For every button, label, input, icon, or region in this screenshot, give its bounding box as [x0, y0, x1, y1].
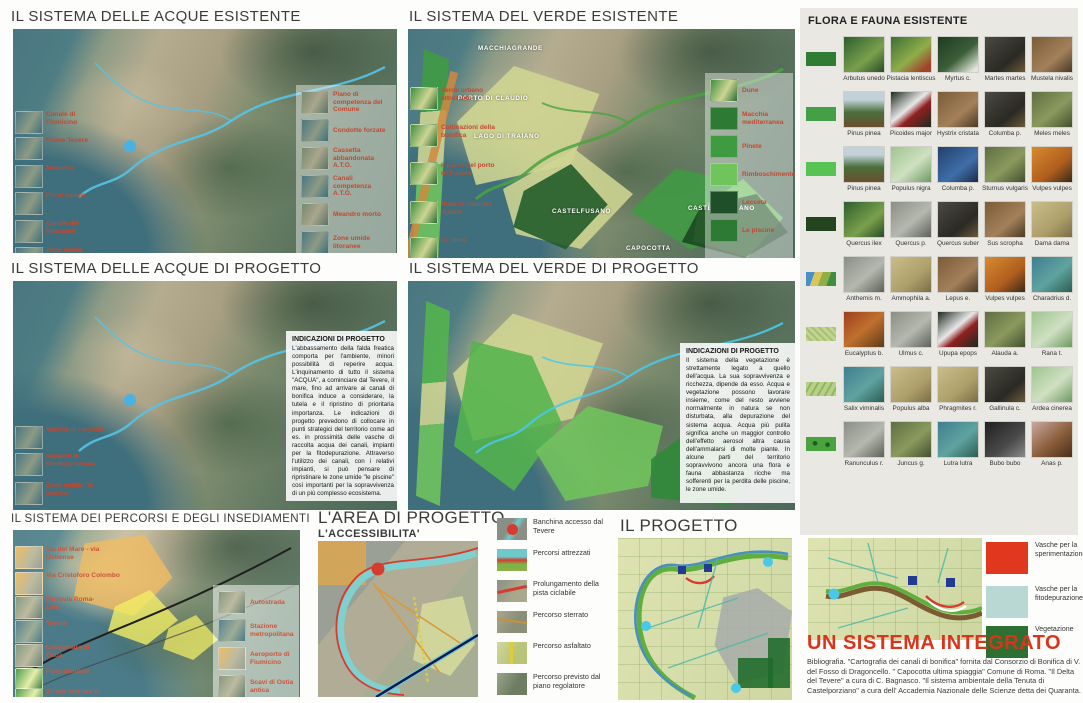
map-callout: Meandro [15, 165, 104, 188]
map-callout: Coltivazioni della bonifica [410, 124, 499, 147]
callout-thumbnail [15, 546, 43, 569]
callout-label: Via Cristoforo Colombo [46, 572, 124, 580]
legend-item: Canali competenza A.T.O. [301, 175, 391, 198]
species-name: Anthemis m. [846, 295, 882, 302]
acque-esistente-title: IL SISTEMA DELLE ACQUE ESISTENTE [11, 8, 301, 25]
species-name: Mustela nivalis [1031, 75, 1073, 82]
species-name: Pistacia lentiscus [886, 75, 935, 82]
callout-thumbnail [410, 124, 438, 147]
species-cell: Sturnus vulgaris [983, 146, 1027, 192]
flora-row: Arbutus unedo Pistacia lentiscus Myrtus … [806, 36, 1078, 82]
legend-label: Zone umide litoranee [333, 235, 391, 250]
verde-esistente-legend: Dune Macchia mediterranea Pinete Rimbosc… [705, 73, 793, 258]
map-callout: Zone umide "le piscine" [15, 482, 104, 505]
legend-thumbnail [710, 191, 738, 214]
species-cell: Anas p. [1030, 421, 1074, 467]
species-name: Salix viminalis [844, 405, 884, 412]
species-cell: Upupa epops [936, 311, 980, 357]
species-cell: Mustela nivalis [1030, 36, 1074, 82]
accessibilita-routes-graphic [318, 541, 478, 697]
legend-thumbnail [710, 163, 738, 186]
legend-thumbnail [710, 135, 738, 158]
legend-label: Stazione metropolitana [250, 623, 294, 638]
species-photo [1031, 311, 1073, 348]
species-photo [843, 36, 885, 73]
legend-item: Zone umide litoranee [301, 231, 391, 253]
legend-thumbnail [218, 675, 246, 697]
species-name: Gallinula c. [989, 405, 1021, 412]
species-cell: Columba p. [936, 146, 980, 192]
species-name: Ardea cinerea [1032, 405, 1072, 412]
species-cell: Populus alba [889, 366, 933, 412]
species-photo [890, 366, 932, 403]
legend-item: Condotte forzate [301, 119, 391, 142]
species-photo [1031, 366, 1073, 403]
map-callout: Canale di Fiumicino [15, 111, 104, 134]
legend-swatch [986, 586, 1028, 618]
acque-esistente-map: Canale di Fiumicino Fiume Tevere Meandro… [13, 29, 397, 253]
integrato-legend-item: Vasche per la sperimentazione [986, 542, 1083, 574]
callout-label: Le dune [441, 237, 499, 245]
species-name: Martes martes [985, 75, 1026, 82]
place-label: CASTELFUSANO [552, 208, 611, 215]
map-callout: Canale dei Pescatori [15, 220, 104, 243]
species-name: Anas p. [1041, 460, 1063, 467]
legend-thumbnail [301, 119, 329, 142]
legend-item: Pinete [710, 135, 788, 158]
species-name: Vulpes vulpes [1032, 185, 1072, 192]
species-name: Lutra lutra [944, 460, 973, 467]
flora-row: Ranunculus r. Juncus g. Lutra lutra Bubo… [806, 421, 1078, 467]
callout-thumbnail [410, 201, 438, 224]
legend-item: Dune [710, 79, 788, 102]
callout-thumbnail [15, 137, 43, 160]
callout-label: Tevere [46, 620, 104, 628]
map-callout: Impianti di fitodepurazione [15, 453, 104, 476]
habitat-swatch [806, 162, 836, 176]
species-photo [890, 201, 932, 238]
species-name: Ammophila a. [891, 295, 930, 302]
legend-item: Piano di competenza del Comune [301, 91, 391, 114]
species-cell: Salix viminalis [842, 366, 886, 412]
callout-thumbnail [15, 247, 43, 253]
species-cell: Meles meles [1030, 91, 1074, 137]
flora-row: Pinus pinea Populus nigra Columba p. Stu… [806, 146, 1078, 192]
callout-label: Verde urbano attrezzato [441, 87, 499, 102]
species-cell: Pinus pinea [842, 91, 886, 137]
map-callout: Fiume Tevere [15, 137, 104, 160]
species-name: Populus alba [893, 405, 930, 412]
species-photo [984, 91, 1026, 128]
species-cell: Eucalyptus b. [842, 311, 886, 357]
acque-progetto-title: IL SISTEMA DELLE ACQUE DI PROGETTO [11, 260, 321, 277]
map-callout: Vasche di raccolta [15, 426, 104, 449]
species-photo [843, 421, 885, 458]
habitat-swatch [806, 107, 836, 121]
species-name: Sturnus vulgaris [982, 185, 1028, 192]
legend-item: Percorso sterrato [497, 611, 612, 633]
callout-label: Pista ciclabile [46, 668, 104, 676]
species-photo [937, 256, 979, 293]
species-cell: Phragmites r. [936, 366, 980, 412]
habitat-swatch [806, 217, 836, 231]
species-cell: Ranunculus r. [842, 421, 886, 467]
map-callout: Tevere [15, 620, 104, 643]
species-cell: Populus nigra [889, 146, 933, 192]
species-cell: Vulpes vulpes [983, 256, 1027, 302]
species-cell: Quercus suber [936, 201, 980, 247]
species-cell: Martes martes [983, 36, 1027, 82]
legend-item: Autostrada [218, 591, 294, 614]
legend-thumbnail [497, 673, 527, 695]
species-photo [843, 146, 885, 183]
species-cell: Lutra lutra [936, 421, 980, 467]
species-photo [984, 421, 1026, 458]
map-callout: Via del Mare - via Ostiense [15, 546, 124, 569]
callout-thumbnail [15, 426, 43, 449]
callout-label: Zone umide [46, 247, 104, 253]
species-cell: Picoides major [889, 91, 933, 137]
bibliography-text: Bibliografia. "Cartografia dei canali di… [807, 657, 1081, 696]
species-name: Hystrix cristata [937, 130, 979, 137]
species-name: Populus nigra [891, 185, 930, 192]
indicazioni-text: L'abbassamento della falda freatica comp… [292, 345, 394, 498]
legend-label: Percorso asfaltato [533, 642, 591, 651]
accessibilita-legend: Banchina accesso dal Tevere Percorsi att… [497, 518, 612, 703]
species-cell: Pinus pinea [842, 146, 886, 192]
species-photo [937, 146, 979, 183]
sistema-integrato-map [808, 538, 982, 640]
map-callout: Zone umide [15, 247, 104, 253]
legend-label: Cassetta abbandonata A.T.O. [333, 147, 391, 170]
species-photo [1031, 256, 1073, 293]
callout-label: Vasche di raccolta [46, 426, 104, 434]
habitat-swatch [806, 272, 836, 286]
indicazioni-text: Il sistema della vegetazione è strettame… [686, 357, 790, 494]
legend-item: Lecceta [710, 191, 788, 214]
species-name: Vulpes vulpes [985, 295, 1025, 302]
callout-thumbnail [15, 453, 43, 476]
legend-item: Le piscine [710, 219, 788, 242]
legend-thumbnail [301, 175, 329, 198]
species-name: Arbutus unedo [843, 75, 885, 82]
species-photo [890, 36, 932, 73]
legend-label: Percorso previsto dal piano regolatore [533, 673, 612, 690]
legend-item: Aeroporto di Fiumicino [218, 647, 294, 670]
species-cell: Quercus p. [889, 201, 933, 247]
habitat-swatch [806, 382, 836, 396]
species-photo [984, 201, 1026, 238]
species-photo [890, 256, 932, 293]
area-progetto-title: L'AREA DI PROGETTO [318, 508, 505, 528]
species-photo [937, 91, 979, 128]
legend-label: Aeroporto di Fiumicino [250, 651, 294, 666]
callout-thumbnail [410, 87, 438, 110]
legend-thumbnail [301, 203, 329, 226]
legend-thumbnail [218, 591, 246, 614]
legend-label: Percorsi attrezzati [533, 549, 591, 558]
legend-item: Macchia mediterranea [710, 107, 788, 130]
accessibilita-map [318, 541, 478, 697]
callout-label: Il parco del porto di Traiano [441, 162, 499, 177]
species-name: Juncus g. [897, 460, 924, 467]
legend-thumbnail [301, 147, 329, 170]
percorsi-legend: Autostrada Stazione metropolitana Aeropo… [213, 585, 299, 697]
map-callout: Porto canale [15, 192, 104, 215]
map-callout: Il parco del porto di Traiano [410, 162, 499, 185]
species-photo [1031, 91, 1073, 128]
callout-label: Canale dei Pescatori [46, 220, 104, 235]
callout-label: Zone umide "le piscine" [46, 482, 104, 497]
legend-thumbnail [710, 79, 738, 102]
legend-label: Vasche per la sperimentazione [1035, 542, 1083, 560]
species-name: Myrtus c. [945, 75, 971, 82]
legend-label: Piano di competenza del Comune [333, 91, 391, 114]
legend-item: Cassetta abbandonata A.T.O. [301, 147, 391, 170]
species-name: Eucalyptus b. [845, 350, 883, 357]
species-name: Phragmites r. [939, 405, 977, 412]
species-photo [890, 146, 932, 183]
legend-label: Pinete [742, 143, 788, 151]
legend-thumbnail [497, 580, 527, 602]
map-callout: Via Cristoforo Colombo [15, 572, 124, 595]
percorsi-map: Via del Mare - via Ostiense Via Cristofo… [13, 530, 300, 697]
callout-label: Canale di Fiumicino [46, 111, 104, 126]
flora-row: Pinus pinea Picoides major Hystrix crist… [806, 91, 1078, 137]
progetto-title: IL PROGETTO [620, 516, 738, 536]
species-name: Picoides major [890, 130, 932, 137]
species-photo [984, 146, 1026, 183]
legend-item: Percorso previsto dal piano regolatore [497, 673, 612, 695]
legend-label: Banchina accesso dal Tevere [533, 518, 612, 535]
legend-thumbnail [218, 619, 246, 642]
legend-item: Percorso asfaltato [497, 642, 612, 664]
callout-label: Meandro [46, 165, 104, 173]
species-photo [937, 311, 979, 348]
flora-row: Eucalyptus b. Ulmus c. Upupa epops Alaud… [806, 311, 1078, 357]
species-cell: Sus scropha [983, 201, 1027, 247]
legend-label: Macchia mediterranea [742, 111, 788, 126]
legend-item: Stazione metropolitana [218, 619, 294, 642]
species-name: Lepus e. [946, 295, 971, 302]
flora-fauna-panel: FLORA E FAUNA ESISTENTE Arbutus unedo Pi… [800, 8, 1078, 535]
callout-thumbnail [15, 220, 43, 243]
map-callout: Verde urbano attrezzato [410, 87, 499, 110]
habitat-swatch [806, 327, 836, 341]
species-photo [984, 366, 1026, 403]
map-callout: Le dune [410, 237, 499, 258]
map-callout: Strade sterrate di bonifica [15, 688, 104, 697]
species-cell: Rana t. [1030, 311, 1074, 357]
callout-label: Porto canale [46, 192, 104, 200]
legend-item: Meandro morto [301, 203, 391, 226]
indicazioni-title: INDICAZIONI DI PROGETTO [292, 336, 394, 343]
species-photo [843, 366, 885, 403]
species-photo [890, 421, 932, 458]
legend-swatch [986, 542, 1028, 574]
map-callout: Ferrovia Roma-Lido [15, 596, 104, 619]
callout-label: Lungomare di Ostia [46, 644, 104, 659]
callout-thumbnail [410, 162, 438, 185]
species-name: Meles meles [1034, 130, 1070, 137]
place-label: CAPOCOTTA [626, 245, 671, 252]
percorsi-title: IL SISTEMA DEI PERCORSI E DEGLI INSEDIAM… [11, 513, 310, 525]
legend-label: Lecceta [742, 199, 788, 207]
verde-esistente-map: MACCHIAGRANDE PORTO DI CLAUDIO LAGO DI T… [408, 29, 795, 258]
legend-label: Rimboschimento [742, 171, 795, 179]
species-name: Quercus ilex [846, 240, 882, 247]
integrato-legend-item: Vasche per la fitodepurazione [986, 586, 1083, 618]
legend-label: Canali competenza A.T.O. [333, 175, 391, 198]
flora-row: Quercus ilex Quercus p. Quercus suber Su… [806, 201, 1078, 247]
species-cell: Hystrix cristata [936, 91, 980, 137]
legend-label: Condotte forzate [333, 127, 391, 135]
callout-thumbnail [15, 111, 43, 134]
callout-thumbnail [15, 165, 43, 188]
legend-item: Prolungamento della pista ciclabile [497, 580, 612, 602]
species-name: Sus scropha [987, 240, 1023, 247]
species-name: Quercus p. [895, 240, 926, 247]
indicazioni-acque-box: INDICAZIONI DI PROGETTO L'abbassamento d… [286, 331, 397, 501]
callout-label: Strade sterrate di bonifica [46, 688, 104, 697]
legend-label: Scavi di Ostia antica [250, 679, 294, 694]
species-name: Ranunculus r. [844, 460, 883, 467]
callout-thumbnail [410, 237, 438, 258]
species-photo [1031, 36, 1073, 73]
species-cell: Gallinula c. [983, 366, 1027, 412]
species-name: Quercus suber [937, 240, 979, 247]
species-name: Columba p. [942, 185, 975, 192]
callout-thumbnail [15, 596, 43, 619]
callout-label: Riserva naturale statale [441, 201, 499, 216]
progetto-map [618, 538, 792, 700]
species-photo [843, 201, 885, 238]
integrato-graphic [808, 538, 982, 640]
species-cell: Pistacia lentiscus [889, 36, 933, 82]
legend-thumbnail [301, 231, 329, 253]
legend-thumbnail [497, 642, 527, 664]
callout-thumbnail [15, 620, 43, 643]
poster-board: IL SISTEMA DELLE ACQUE ESISTENTE Canale … [0, 0, 1083, 703]
map-callout: Lungomare di Ostia [15, 644, 104, 667]
species-photo [984, 311, 1026, 348]
callout-label: Impianti di fitodepurazione [46, 453, 104, 468]
legend-label: Le piscine [742, 227, 788, 235]
callout-thumbnail [15, 482, 43, 505]
legend-label: Autostrada [250, 599, 294, 607]
species-cell: Bubo bubo [983, 421, 1027, 467]
legend-label: Prolungamento della pista ciclabile [533, 580, 612, 597]
species-photo [937, 421, 979, 458]
species-cell: Ammophila a. [889, 256, 933, 302]
species-name: Upupa epops [939, 350, 977, 357]
species-cell: Myrtus c. [936, 36, 980, 82]
species-cell: Anthemis m. [842, 256, 886, 302]
species-cell: Vulpes vulpes [1030, 146, 1074, 192]
species-name: Dama dama [1035, 240, 1070, 247]
legend-label: Percorso sterrato [533, 611, 588, 620]
species-name: Alauda a. [991, 350, 1018, 357]
species-photo [890, 91, 932, 128]
species-name: Ulmus c. [899, 350, 924, 357]
legend-thumbnail [710, 107, 738, 130]
place-label: MACCHIAGRANDE [478, 45, 543, 52]
species-cell: Dama dama [1030, 201, 1074, 247]
legend-thumbnail [497, 549, 527, 571]
verde-progetto-title: IL SISTEMA DEL VERDE DI PROGETTO [409, 260, 699, 277]
callout-thumbnail [15, 644, 43, 667]
species-photo [984, 256, 1026, 293]
species-photo [1031, 146, 1073, 183]
species-photo [843, 256, 885, 293]
verde-esistente-title: IL SISTEMA DEL VERDE ESISTENTE [409, 8, 678, 25]
legend-thumbnail [218, 647, 246, 670]
species-photo [843, 91, 885, 128]
species-name: Bubo bubo [990, 460, 1021, 467]
species-photo [937, 36, 979, 73]
habitat-swatch [806, 52, 836, 66]
verde-progetto-map: INDICAZIONI DI PROGETTO Il sistema della… [408, 281, 795, 510]
callout-thumbnail [15, 192, 43, 215]
flora-row: Anthemis m. Ammophila a. Lepus e. Vulpes… [806, 256, 1078, 302]
species-name: Rana t. [1042, 350, 1063, 357]
callout-label: Fiume Tevere [46, 137, 104, 145]
species-photo [890, 311, 932, 348]
species-photo [1031, 201, 1073, 238]
legend-item: Scavi di Ostia antica [218, 675, 294, 697]
legend-label: Vasche per la fitodepurazione [1035, 586, 1083, 604]
legend-item: Rimboschimento [710, 163, 788, 186]
progetto-graphic [618, 538, 792, 700]
species-photo [937, 366, 979, 403]
species-cell: Alauda a. [983, 311, 1027, 357]
legend-label: Meandro morto [333, 211, 391, 219]
species-cell: Quercus ilex [842, 201, 886, 247]
callout-thumbnail [15, 688, 43, 697]
legend-item: Banchina accesso dal Tevere [497, 518, 612, 540]
species-photo [984, 36, 1026, 73]
legend-label: Dune [742, 87, 788, 95]
habitat-swatch [806, 437, 836, 451]
species-name: Columba p. [989, 130, 1022, 137]
species-cell: Ulmus c. [889, 311, 933, 357]
species-cell: Lepus e. [936, 256, 980, 302]
flora-fauna-title: FLORA E FAUNA ESISTENTE [800, 8, 1078, 27]
callout-label: Ferrovia Roma-Lido [46, 596, 104, 611]
callout-label: Via del Mare - via Ostiense [46, 546, 124, 561]
species-photo [843, 311, 885, 348]
callout-label: Coltivazioni della bonifica [441, 124, 499, 139]
species-cell: Charadrius d. [1030, 256, 1074, 302]
acque-esistente-legend: Piano di competenza del Comune Condotte … [296, 85, 396, 253]
indicazioni-verde-box: INDICAZIONI DI PROGETTO Il sistema della… [680, 343, 795, 503]
species-cell: Columba p. [983, 91, 1027, 137]
legend-item: Percorsi attrezzati [497, 549, 612, 571]
legend-thumbnail [301, 91, 329, 114]
species-cell: Arbutus unedo [842, 36, 886, 82]
legend-thumbnail [710, 219, 738, 242]
legend-thumbnail [497, 611, 527, 633]
flora-row: Salix viminalis Populus alba Phragmites … [806, 366, 1078, 412]
callout-thumbnail [15, 572, 43, 595]
map-callout: Riserva naturale statale [410, 201, 499, 224]
acque-progetto-map: Vasche di raccolta Impianti di fitodepur… [13, 281, 397, 510]
accessibilita-subtitle: L'ACCESSIBILITA' [318, 528, 420, 540]
species-photo [937, 201, 979, 238]
legend-thumbnail [497, 518, 527, 540]
species-photo [1031, 421, 1073, 458]
species-name: Pinus pinea [847, 185, 880, 192]
